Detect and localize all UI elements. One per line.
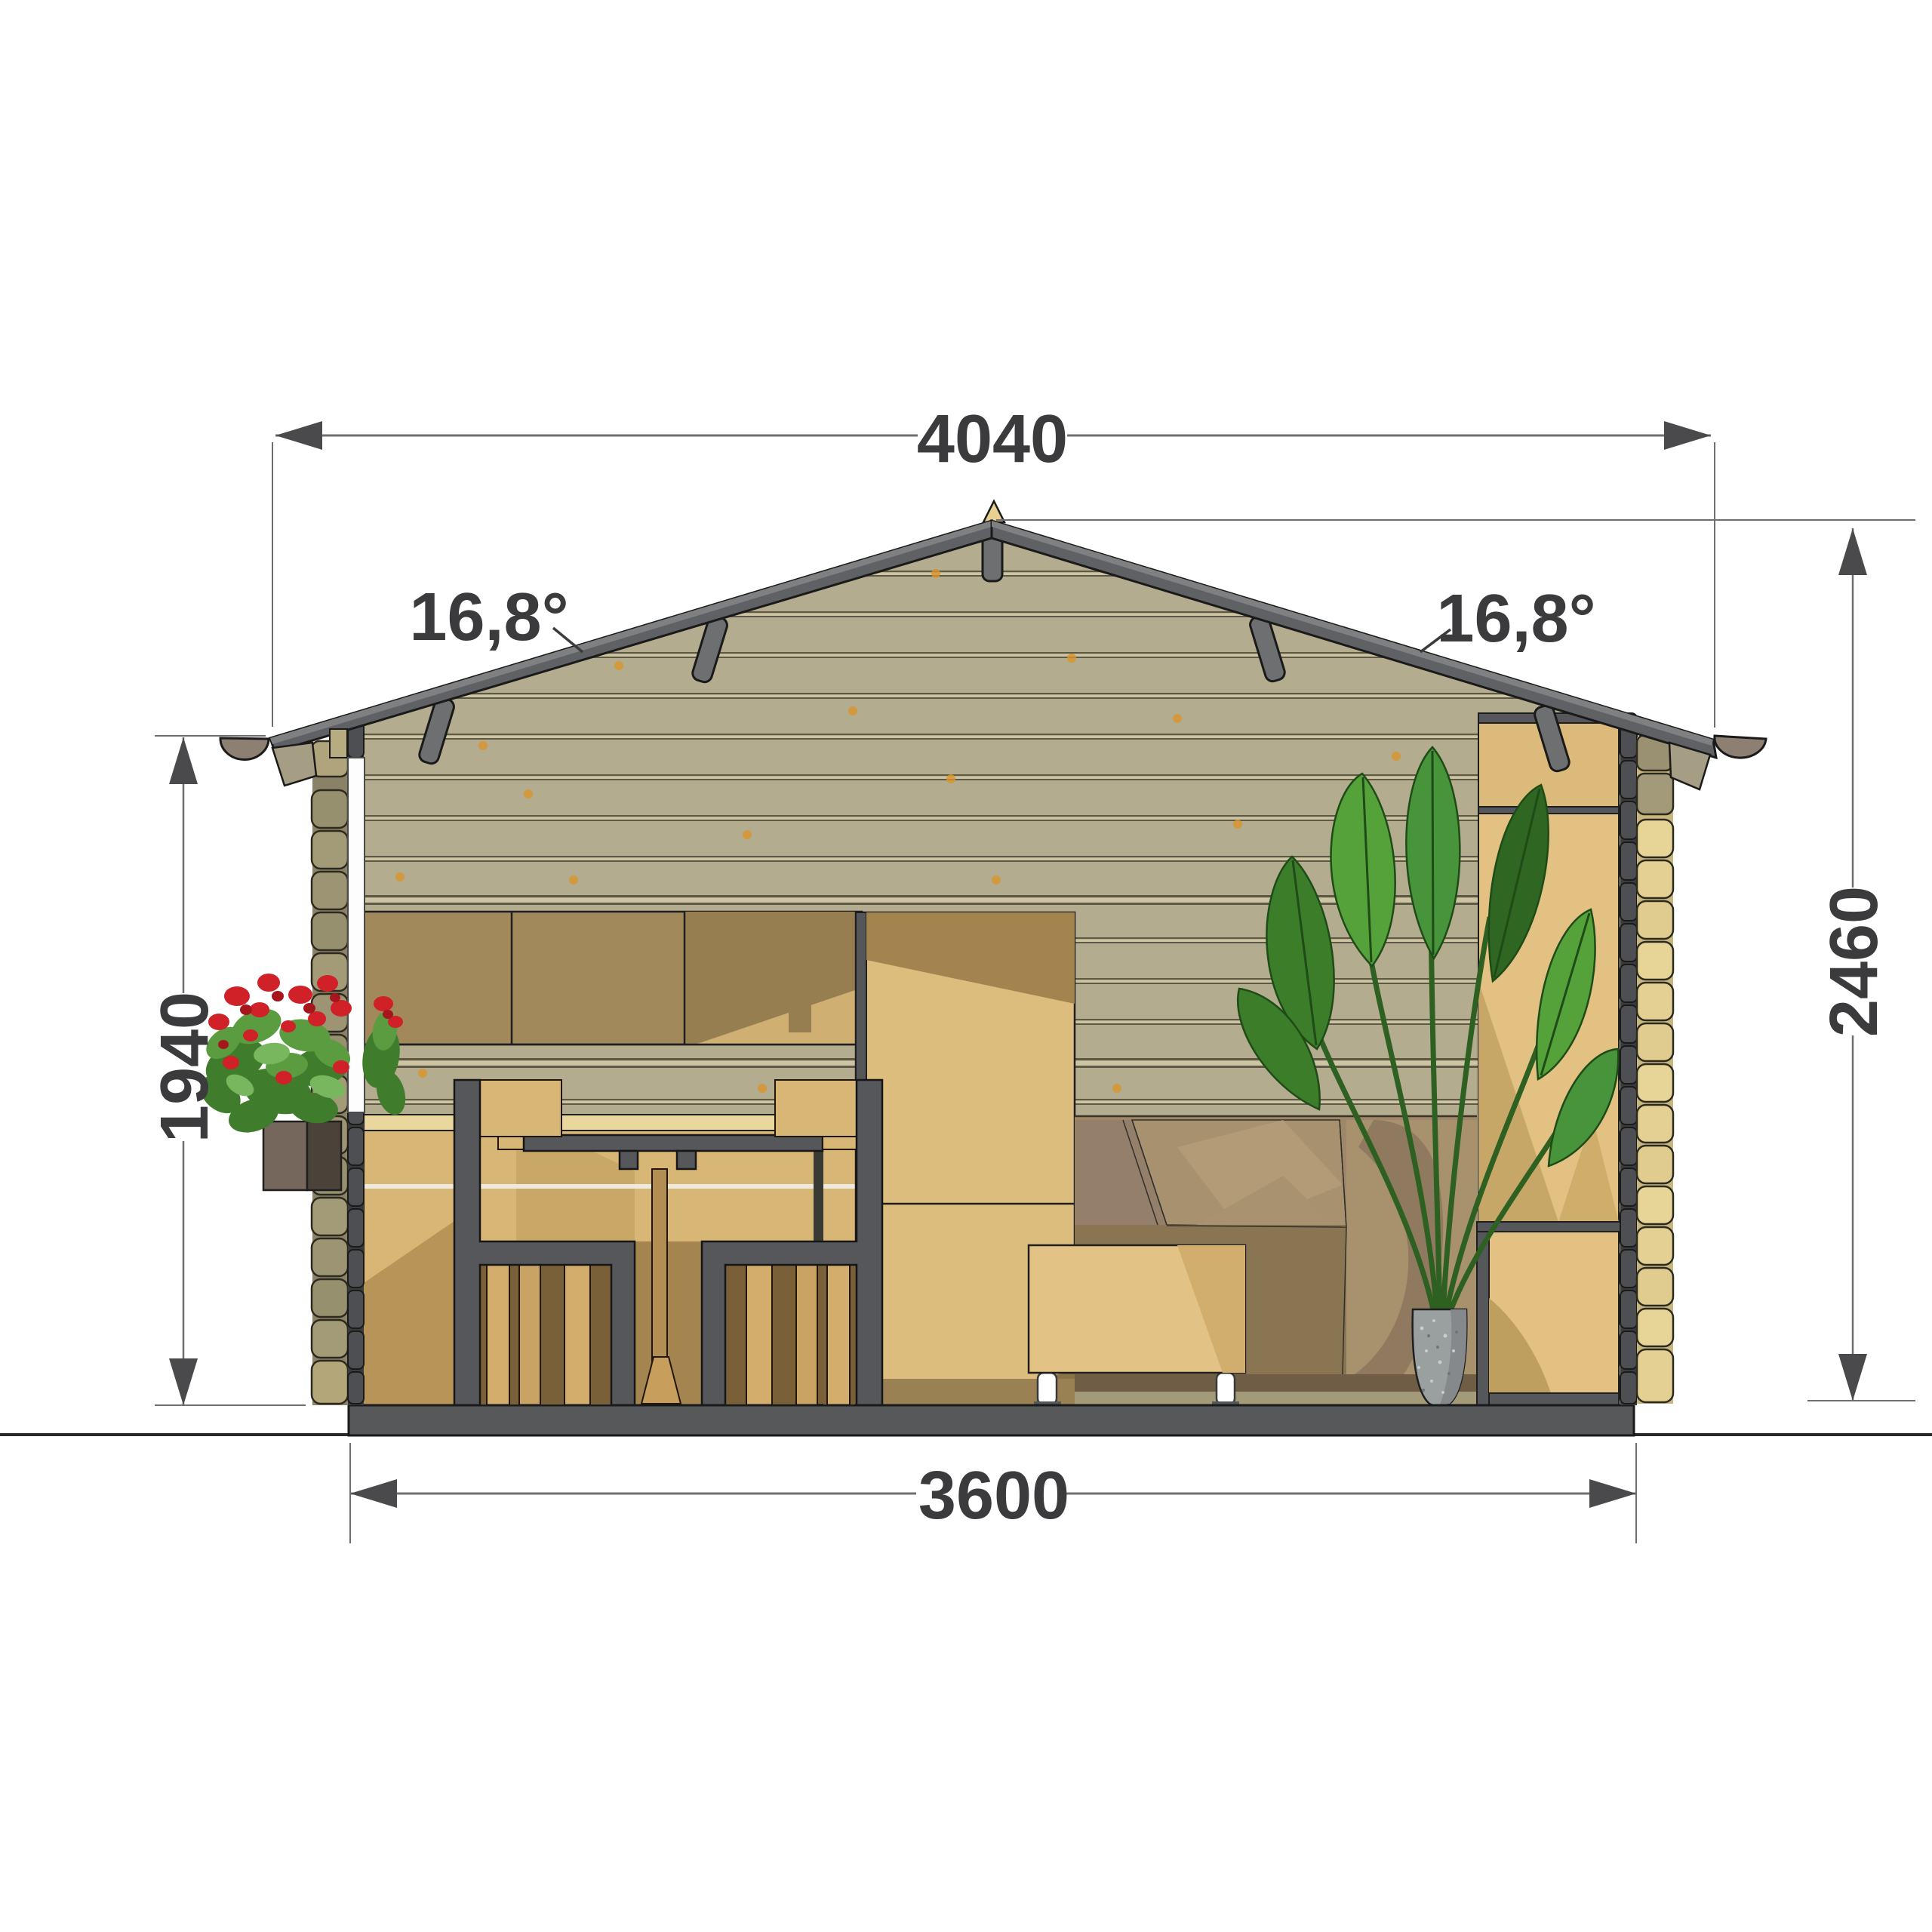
- svg-text:4040: 4040: [917, 401, 1068, 477]
- svg-text:3600: 3600: [918, 1458, 1069, 1534]
- svg-text:1940: 1940: [147, 992, 223, 1143]
- svg-text:16,8°: 16,8°: [1436, 581, 1595, 657]
- svg-text:16,8°: 16,8°: [409, 580, 568, 655]
- svg-text:2460: 2460: [1817, 886, 1892, 1037]
